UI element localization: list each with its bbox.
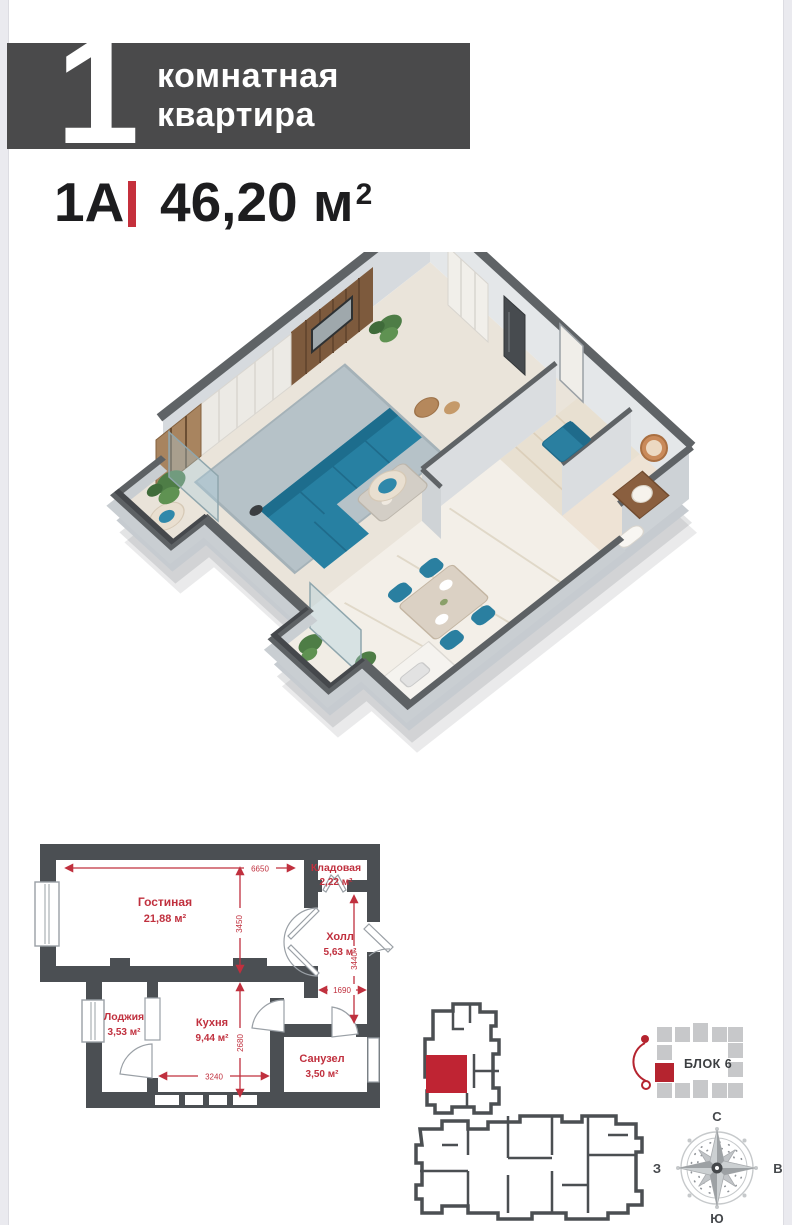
block-label: БЛОК 6: [684, 1057, 732, 1071]
dim-kitchen-depth: 2680: [236, 1034, 245, 1052]
dim-living-depth: 3450: [235, 915, 244, 933]
isometric-render: [90, 252, 710, 812]
room-area: 3,53 м²: [108, 1027, 142, 1038]
selected-unit[interactable]: [426, 1055, 467, 1093]
room-label: Кладовая: [311, 862, 361, 874]
unit-area: 46,20 м2: [160, 170, 370, 234]
room-label: Гостиная: [138, 895, 192, 909]
room-area: 5,63 м²: [324, 947, 358, 958]
compass-north: С: [712, 1109, 722, 1124]
page-title-line2: квартира: [157, 96, 339, 135]
dim-top: 6650: [251, 865, 269, 874]
room-area: 21,88 м²: [144, 913, 187, 925]
room-area: 9,44 м²: [196, 1033, 230, 1044]
room-count-number: 1: [56, 16, 139, 166]
page-title: комнатная квартира: [157, 57, 339, 135]
page-edge-left: [0, 0, 9, 1225]
unit-area-unit: м: [313, 171, 354, 233]
unit-area-value: 46,20: [160, 171, 298, 233]
wing-outline: [416, 1116, 642, 1219]
page-title-line1: комнатная: [157, 57, 339, 96]
dim-hall-width: 1690: [333, 986, 351, 995]
dim-kitchen-width: 3240: [205, 1073, 223, 1082]
page-edge-right: [783, 0, 792, 1225]
unit-area-exponent: 2: [356, 178, 373, 211]
brochure-page: 1 комнатная квартира 1A 46,20 м2: [0, 0, 792, 1225]
compass-east: В: [773, 1161, 782, 1176]
red-divider: [128, 181, 136, 227]
selection-arc: [633, 1043, 646, 1081]
arc-end-dot: [641, 1035, 649, 1043]
compass-south: Ю: [710, 1211, 723, 1225]
compass-west: З: [653, 1161, 661, 1176]
unit-code: 1A: [54, 170, 124, 234]
room-area: 3,50 м²: [306, 1069, 340, 1080]
selected-block-square[interactable]: [655, 1063, 674, 1082]
room-label: Санузел: [299, 1053, 344, 1065]
block-selector[interactable]: БЛОК 6: [605, 1010, 780, 1110]
arc-end-ring: [642, 1081, 650, 1089]
room-area: 2,22 м²: [320, 877, 354, 888]
room-label: Холл: [326, 931, 354, 943]
room-label: Кухня: [196, 1017, 228, 1029]
compass: С Ю З В: [648, 1108, 788, 1225]
floor-plan-2d: 6650 3450 2680 3440 1690 3240 Гостиная 2…: [22, 838, 402, 1125]
room-label: Лоджия: [104, 1011, 144, 1023]
